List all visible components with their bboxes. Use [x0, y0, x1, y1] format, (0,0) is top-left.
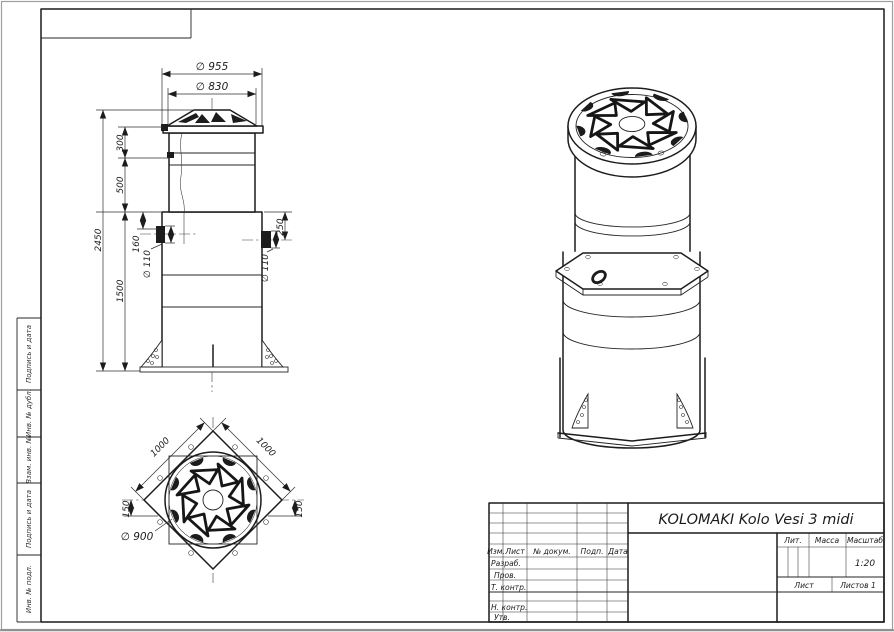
tb-header-list: Лист	[504, 547, 525, 556]
title-block: KOLOMAKI Kolo Vesi 3 midi Изм. Лист № до…	[487, 503, 884, 622]
top-left-ref-box	[41, 9, 191, 38]
strip-label-4: Подпись и дата	[25, 490, 33, 548]
tb-header-data: Дата	[607, 547, 628, 556]
strip-label-2: Инв. № дубл.	[25, 389, 33, 437]
front-base-plate	[140, 367, 288, 372]
tb-sheets-label: Листов 1	[839, 581, 876, 590]
tb-role-nkontr: Н. контр.	[491, 603, 527, 612]
dim-front-d830: ∅ 830	[196, 81, 229, 93]
strip-label-5: Инв. № подл.	[25, 565, 33, 613]
plan-view: 1000 1000 150 150 ∅ 900	[121, 417, 305, 583]
front-gusset-right	[262, 340, 283, 367]
tb-role-razrab: Разраб.	[491, 559, 521, 568]
front-inlet-pipe	[156, 226, 165, 243]
front-upper-body	[169, 133, 255, 212]
dim-plan-d900: ∅ 900	[121, 531, 154, 543]
dim-front-1500: 1500	[116, 279, 126, 302]
dim-front-2450: 2450	[94, 228, 104, 251]
tb-masshtab-label: Масштаб	[847, 536, 883, 545]
front-gusset-left	[141, 340, 162, 367]
iso-view	[556, 86, 708, 448]
tb-massa-label: Масса	[815, 536, 840, 545]
tb-header-ndokum: № докум.	[532, 547, 570, 556]
tb-role-prov: Пров.	[494, 571, 516, 580]
tb-scale-value: 1:20	[855, 559, 875, 569]
front-outlet-pipe	[261, 231, 271, 248]
iso-cap	[568, 86, 696, 177]
drawing-canvas: Подпись и дата Инв. № дубл. Взам. инв. №…	[0, 0, 894, 632]
front-cap	[167, 110, 257, 126]
tb-header-izm: Изм.	[487, 547, 505, 556]
strip-label-3: Взам. инв. №	[25, 436, 33, 484]
tb-header-podp: Подп.	[581, 547, 604, 556]
dim-plan-150-right: 150	[295, 500, 305, 517]
tb-lit-label: Лит.	[783, 536, 801, 545]
dim-plan-150-left: 150	[122, 500, 132, 517]
dim-front-d110-left: ∅ 110	[143, 250, 153, 278]
tb-sheet-label: Лист	[793, 581, 814, 590]
dim-front-160: 160	[132, 235, 142, 252]
strip-label-1: Подпись и дата	[25, 325, 33, 383]
dim-front-500: 500	[116, 176, 126, 193]
dim-front-d955: ∅ 955	[196, 61, 229, 73]
tb-role-tkontr: Т. контр.	[491, 583, 526, 592]
dim-front-d110-right: ∅ 110	[261, 254, 271, 282]
front-flange	[163, 126, 263, 133]
front-lower-body	[162, 212, 262, 370]
drawing-title: KOLOMAKI Kolo Vesi 3 midi	[658, 512, 853, 528]
tb-role-utv: Утв.	[494, 613, 510, 622]
margin-strip: Подпись и дата Инв. № дубл. Взам. инв. №…	[17, 318, 41, 622]
dim-front-250: 250	[276, 218, 286, 235]
front-view: ∅ 955 ∅ 830 300 500 1500 2450 1	[94, 61, 292, 392]
dim-front-300: 300	[116, 134, 126, 151]
drawing-sheet: Подпись и дата Инв. № дубл. Взам. инв. №…	[0, 0, 894, 632]
